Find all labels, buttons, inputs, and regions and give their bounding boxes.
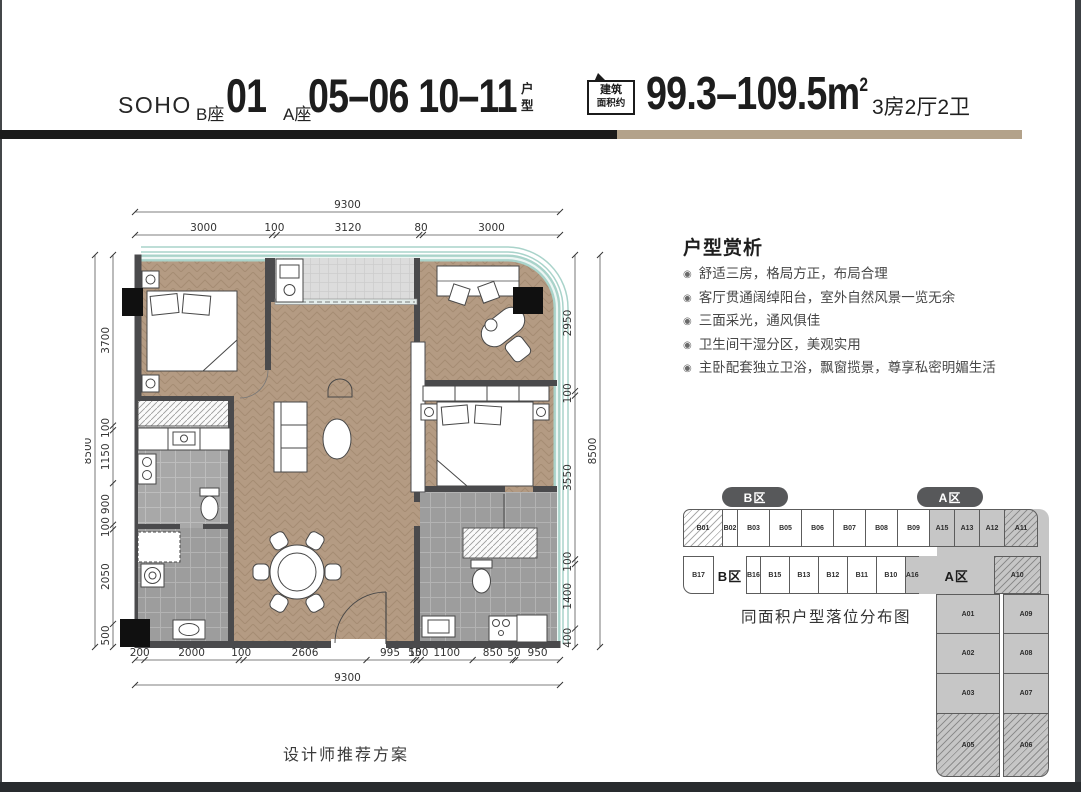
- dim-label: 8500: [85, 438, 94, 465]
- divider-bar-black: [0, 130, 617, 139]
- area-superscript: 2: [859, 75, 867, 96]
- bullet-text: 卫生间干湿分区，美观实用: [699, 337, 861, 352]
- zone-label: B区: [713, 556, 747, 594]
- unit-cell-a07: A07: [1003, 673, 1049, 714]
- unit-cell-b01: B01: [683, 509, 723, 547]
- zone-label: A区: [919, 556, 995, 594]
- bullet-icon: ◉: [683, 340, 692, 351]
- dim-label: 850: [483, 647, 503, 659]
- unit-cell-a02: A02: [936, 633, 1000, 674]
- badge-line2: 面积约: [589, 97, 633, 110]
- dim-label: 100: [100, 517, 112, 537]
- toilet: [201, 496, 218, 520]
- dim-label: 1150: [100, 443, 112, 470]
- unit-cell-b10: B10: [876, 556, 906, 594]
- bullet-text: 客厅贯通阔绰阳台，室外自然风景一览无余: [699, 290, 956, 305]
- dim-label: 1100: [433, 647, 460, 659]
- bedroom-right-furniture: [421, 386, 549, 486]
- unit-cell-a08: A08: [1003, 633, 1049, 674]
- bullet-icon: ◉: [683, 363, 692, 374]
- dim-label: 9300: [334, 672, 361, 684]
- toilet-tank: [471, 560, 492, 568]
- unit-cell-b15: B15: [760, 556, 790, 594]
- bullet-icon: ◉: [683, 316, 692, 327]
- bullet-text: 主卧配套独立卫浴，飘窗揽景，尊享私密明媚生活: [699, 360, 996, 375]
- locator-tail-left: A01A02A03A05: [936, 594, 1000, 777]
- divider-bar-tan: [617, 130, 1022, 139]
- unit-cell-a16: A16: [905, 556, 920, 594]
- dim-label: 8500: [587, 438, 599, 465]
- unit-cell-a10: A10: [994, 556, 1041, 594]
- locator-row-1: B01B02B03B05B06B07B08B09A15A13A12A11: [683, 509, 1049, 547]
- unit-cell-b13: B13: [789, 556, 819, 594]
- cooktop: [489, 616, 517, 641]
- wardrobe: [423, 386, 549, 401]
- right-edge-bar: [1075, 0, 1081, 792]
- dim-label: 50: [507, 647, 520, 659]
- dim-label: 2606: [292, 647, 319, 659]
- badge-tail-icon: [594, 73, 607, 82]
- analysis-bullet: ◉卫生间干湿分区，美观实用: [683, 334, 1073, 358]
- plan-caption: 设计师推荐方案: [283, 741, 409, 765]
- locator-tail-right: A09A08A07A06: [1003, 594, 1049, 777]
- sofa: [274, 402, 307, 472]
- bullet-text: 三面采光，通风俱佳: [699, 313, 821, 328]
- dim-label: 400: [562, 628, 574, 648]
- dim-label: 500: [100, 625, 112, 645]
- closet-right: [463, 528, 537, 558]
- dim-label: 100: [562, 383, 574, 403]
- unit-cell-b12: B12: [818, 556, 848, 594]
- suffix-char-top: 户: [521, 81, 534, 98]
- unit-cell-a09: A09: [1003, 594, 1049, 634]
- unit-cell-b11: B11: [847, 556, 877, 594]
- dim-label: 1400: [562, 583, 574, 610]
- unit-type-suffix: 户 型: [521, 81, 534, 115]
- dim-label: 3000: [190, 222, 217, 234]
- dim-label: 2050: [100, 563, 112, 590]
- floorplan-drawing: 9300300010031208030002002000100260699555…: [85, 192, 625, 702]
- unit-cell-a06: A06: [1003, 713, 1049, 777]
- rooms-spec: 3房2厅2卫: [872, 91, 970, 121]
- coffee-table: [323, 419, 351, 459]
- block-b-label: B座: [196, 100, 224, 125]
- unit-cell-a03: A03: [936, 673, 1000, 714]
- badge-line1: 建筑: [589, 83, 633, 97]
- unit-cell-b09: B09: [897, 509, 930, 547]
- area-value: 99.3–109.5m2: [646, 70, 867, 116]
- dim-label: 950: [528, 647, 548, 659]
- bottom-edge-bar: [0, 782, 1081, 792]
- appliance-black: [517, 615, 547, 642]
- analysis-bullet-list: ◉舒适三房，格局方正，布局合理◉客厅贯通阔绰阳台，室外自然风景一览无余◉三面采光…: [683, 263, 1073, 381]
- bullet-text: 舒适三房，格局方正，布局合理: [699, 266, 888, 281]
- dim-label: 3550: [562, 464, 574, 491]
- dim-label: 900: [100, 494, 112, 514]
- zone-b-pill: B区: [722, 487, 788, 507]
- dim-label: 2000: [178, 647, 205, 659]
- dim-label: 100: [264, 222, 284, 234]
- brand-logo-text: SOHO: [118, 92, 192, 119]
- unit-cell-b06: B06: [801, 509, 834, 547]
- unit-number-b: 01: [226, 72, 266, 119]
- balcony-furniture: [276, 259, 303, 302]
- shower-area: [138, 532, 180, 562]
- unit-cell-a01: A01: [936, 594, 1000, 634]
- unit-numbers-a: 05–06 10–11: [308, 72, 517, 119]
- dim-label: 100: [100, 418, 112, 438]
- unit-cell-a11: A11: [1004, 509, 1038, 547]
- dim-label: 100: [562, 552, 574, 572]
- unit-cell-b03: B03: [737, 509, 770, 547]
- unit-cell-b17: B17: [683, 556, 714, 594]
- analysis-bullet: ◉主卧配套独立卫浴，飘窗揽景，尊享私密明媚生活: [683, 357, 1073, 381]
- left-edge-bar: [0, 0, 2, 792]
- unit-cell-b08: B08: [865, 509, 898, 547]
- suffix-char-bottom: 型: [521, 98, 534, 115]
- unit-cell-b05: B05: [769, 509, 802, 547]
- analysis-title: 户型赏析: [683, 233, 763, 260]
- analysis-bullet: ◉三面采光，通风俱佳: [683, 310, 1073, 334]
- unit-cell-b07: B07: [833, 509, 866, 547]
- dim-label: 3120: [335, 222, 362, 234]
- locator-row-2: B17B区B16B15B13B12B11B10A16A区A10: [683, 556, 1049, 594]
- area-badge: 建筑 面积约: [587, 80, 635, 115]
- dim-label: 3700: [100, 327, 112, 354]
- dim-label: 3000: [478, 222, 505, 234]
- unit-cell-a12: A12: [979, 509, 1005, 547]
- zone-a-pill: A区: [917, 487, 983, 507]
- analysis-bullet: ◉舒适三房，格局方正，布局合理: [683, 263, 1073, 287]
- dim-label: 995: [380, 647, 400, 659]
- dim-label: 9300: [334, 199, 361, 211]
- dim-label: 100: [408, 647, 428, 659]
- locator-caption: 同面积户型落位分布图: [741, 605, 911, 627]
- toilet: [473, 569, 491, 593]
- unit-cell-a05: A05: [936, 713, 1000, 777]
- dim-label: 2950: [562, 310, 574, 337]
- dim-label: 100: [231, 647, 251, 659]
- flyer-page: SOHO B座 01 A座 05–06 10–11 户 型 建筑 面积约 99.…: [0, 0, 1081, 792]
- bullet-icon: ◉: [683, 293, 692, 304]
- toilet-tank: [200, 488, 219, 496]
- bullet-icon: ◉: [683, 269, 692, 280]
- closet-left: [138, 400, 230, 426]
- unit-cell-a15: A15: [929, 509, 955, 547]
- unit-cell-b16: B16: [746, 556, 761, 594]
- unit-cell-a13: A13: [954, 509, 980, 547]
- unit-cell-b02: B02: [722, 509, 738, 547]
- analysis-bullet: ◉客厅贯通阔绰阳台，室外自然风景一览无余: [683, 287, 1073, 311]
- area-number: 99.3–109.5m: [646, 67, 859, 119]
